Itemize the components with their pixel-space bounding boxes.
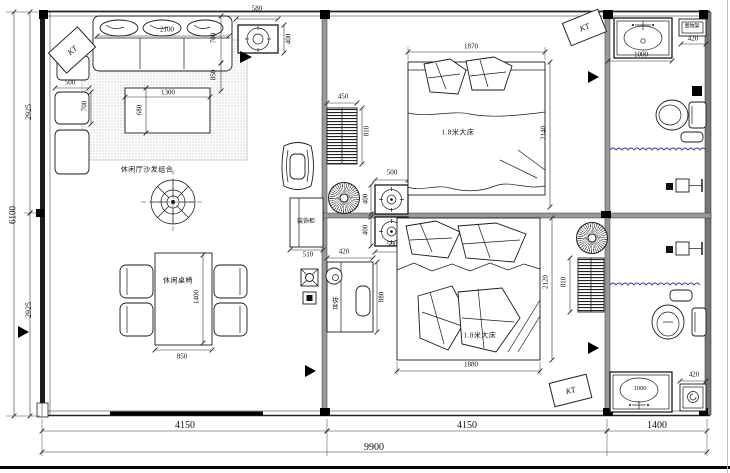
dim-bottom-total: 9900 [364, 443, 384, 453]
dim-dining-width: 850 [177, 354, 188, 361]
ladder-rack-2 [568, 256, 604, 315]
dim-side-chair-width: 500 [65, 80, 76, 87]
dim-bed2-length: 2120 [543, 275, 550, 289]
dim-sofa-width: 2100 [160, 27, 174, 34]
dim-vent-top-width: 500 [387, 170, 398, 177]
dim-coffee-width: 1300 [161, 90, 175, 97]
dim-vent-bottom-width: 500 [387, 242, 398, 249]
dim-vanity1-width: 1000 [634, 52, 648, 59]
dim-vent-top-height: 400 [363, 194, 370, 205]
dining-set-label: 休闲桌椅 [163, 278, 193, 285]
toilet-2 [652, 290, 706, 339]
shower-curtain-2 [610, 283, 700, 285]
plan-linework [0, 0, 730, 473]
exhaust-fan-symbol-2 [576, 222, 608, 254]
dim-bottom-mid: 4150 [457, 421, 477, 431]
bed1-label: 1.8米大床 [442, 130, 475, 137]
kt-label: KT [578, 21, 590, 33]
bed-2 [395, 216, 555, 375]
dim-bottom-right: 1400 [647, 421, 667, 431]
storage-rack-2 [678, 379, 709, 411]
dim-bottom-left: 4150 [175, 421, 195, 431]
dim-vanity2-width: 1000 [634, 386, 647, 393]
dim-dining-length: 1400 [194, 290, 201, 304]
floor-plan: KT KT KT 580 400 2100 700 850 500 700 13… [0, 0, 730, 473]
dim-sofa-side: 850 [211, 70, 218, 81]
kt-label: KT [65, 43, 78, 56]
dim-cabinet-width: 510 [303, 252, 314, 259]
dim-rack1-width: 420 [688, 36, 699, 43]
shower-mixer-2 [666, 242, 702, 255]
dim-ladder2-height: 810 [561, 277, 568, 288]
dim-bed1-length: 2140 [541, 126, 548, 140]
corner-detail [37, 403, 48, 417]
dim-side-chair-depth: 700 [82, 101, 89, 112]
dim-ladder1-height: 810 [364, 126, 371, 137]
dim-fixture-width: 580 [252, 6, 263, 13]
dining-table [153, 253, 215, 353]
dim-sofa-depth: 700 [211, 33, 218, 44]
dim-bed2-width: 1880 [464, 362, 478, 369]
stool [326, 268, 342, 284]
dim-left-total: 6100 [9, 206, 18, 224]
makeup-table-label: 妆台 [330, 297, 337, 310]
fan-hub [340, 194, 349, 203]
shower-curtain-1 [610, 148, 706, 150]
rack-label: 置物架 [684, 25, 699, 30]
armchair [282, 143, 314, 190]
shower-mixer-1 [666, 179, 702, 192]
sofa-group-label: 休闲厅沙发组合 [121, 167, 174, 174]
toilet-1 [656, 100, 706, 142]
dim-bed1-width: 1870 [464, 44, 478, 51]
floor-drain-1 [692, 86, 702, 96]
ceiling-fixture-a [238, 25, 278, 53]
exhaust-fan-symbol-1 [328, 182, 360, 214]
deco-cabinet [288, 198, 326, 252]
deco-cabinet-label: 装饰柜 [297, 219, 315, 225]
bottom-window-band [110, 412, 263, 416]
fan-hub [588, 234, 597, 243]
bed2-label: 1.8米大床 [464, 333, 497, 340]
dim-vent-bottom-height: 400 [363, 225, 370, 236]
vent-fixture-1 [369, 178, 411, 217]
dim-rack2-width: 420 [689, 372, 700, 379]
dim-coffee-depth: 680 [137, 105, 144, 116]
bed-1 [406, 47, 553, 209]
kt-label: KT [565, 385, 577, 396]
sofa [93, 16, 232, 71]
electrical-symbols [301, 269, 318, 304]
dim-makeup-width: 420 [339, 249, 350, 256]
dim-left-upper: 2925 [25, 104, 33, 120]
ceiling-fan-symbol [141, 170, 205, 234]
dim-fixture-height: 400 [286, 34, 293, 45]
dim-makeup-depth: 880 [379, 292, 386, 303]
ladder-rack-1 [325, 101, 365, 167]
dim-ladder1-width: 450 [338, 94, 349, 101]
makeup-table [325, 256, 380, 335]
dim-left-lower: 2925 [25, 302, 33, 318]
